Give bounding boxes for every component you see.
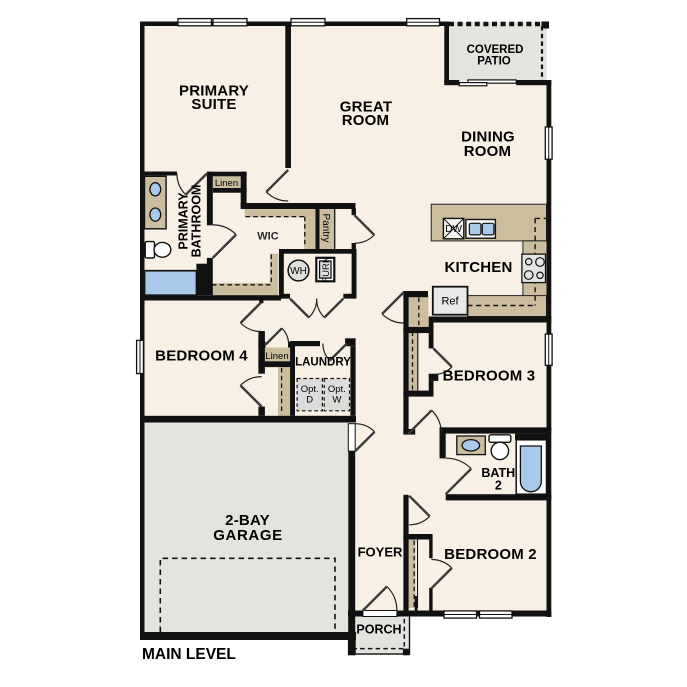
svg-text:BEDROOM 3: BEDROOM 3 [443,368,536,385]
svg-text:ROOM: ROOM [342,112,389,129]
svg-text:DW: DW [445,224,462,235]
svg-text:Linen: Linen [215,178,238,189]
svg-text:D: D [306,395,313,406]
svg-text:PATIO: PATIO [477,56,510,68]
svg-text:SUITE: SUITE [191,96,236,113]
svg-text:MAIN LEVEL: MAIN LEVEL [142,646,236,663]
svg-text:COVERED: COVERED [467,44,524,56]
svg-text:BEDROOM 4: BEDROOM 4 [155,348,248,365]
svg-text:W: W [332,395,341,406]
svg-text:BATHROOM: BATHROOM [190,185,204,258]
svg-text:Opt.: Opt. [328,384,346,395]
svg-text:FOYER: FOYER [358,545,403,560]
svg-text:KITCHEN: KITCHEN [444,259,512,276]
svg-text:ROOM: ROOM [464,143,511,160]
svg-text:WH: WH [290,266,307,277]
svg-text:2: 2 [495,479,502,493]
svg-text:Ref: Ref [441,296,459,308]
svg-text:FURN: FURN [321,256,332,283]
svg-text:GARAGE: GARAGE [213,527,282,544]
svg-text:Opt.: Opt. [301,384,319,395]
svg-text:LAUNDRY: LAUNDRY [295,357,351,369]
svg-text:WIC: WIC [257,231,278,243]
svg-text:BEDROOM 2: BEDROOM 2 [444,546,537,563]
svg-text:PRIMARY: PRIMARY [177,192,191,250]
svg-text:PORCH: PORCH [356,623,401,637]
svg-text:Pantry: Pantry [320,214,331,243]
svg-text:Linen: Linen [265,351,288,362]
